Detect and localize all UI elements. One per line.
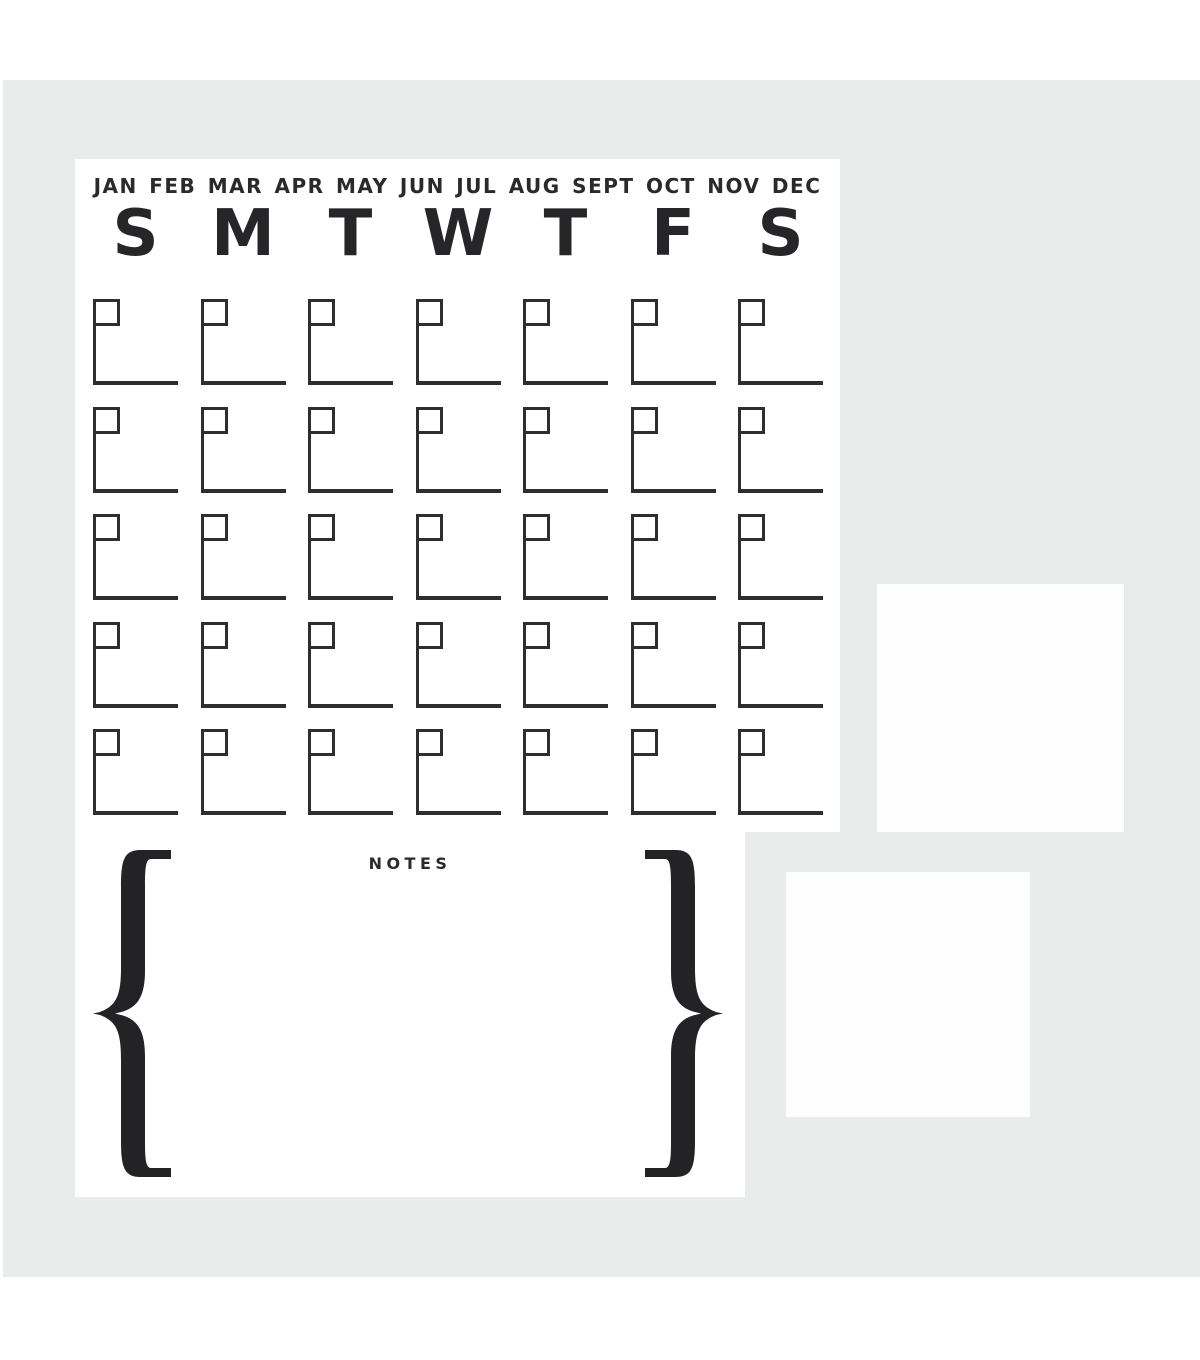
weekday-row: S M T W T F S <box>93 202 823 266</box>
day-cell <box>308 407 393 493</box>
date-box <box>308 729 335 756</box>
months-strip: JAN FEB MAR APR MAY JUN JUL AUG SEPT OCT… <box>75 172 840 200</box>
weekday-letter-saturday: S <box>738 202 823 266</box>
right-brace-icon <box>645 850 723 1177</box>
date-box <box>631 622 658 649</box>
day-cell <box>631 729 716 815</box>
day-cell <box>201 514 286 600</box>
date-box <box>201 729 228 756</box>
weekday-letter-monday: M <box>201 202 286 266</box>
date-box <box>631 729 658 756</box>
date-box <box>308 622 335 649</box>
day-cell <box>93 622 178 708</box>
date-box <box>523 514 550 541</box>
date-box <box>93 299 120 326</box>
weekday-letter-sunday: S <box>93 202 178 266</box>
date-box <box>93 407 120 434</box>
day-cell <box>631 622 716 708</box>
day-cell <box>201 622 286 708</box>
day-cell <box>416 407 501 493</box>
day-cell <box>523 514 608 600</box>
day-cell <box>201 729 286 815</box>
day-cell <box>93 407 178 493</box>
day-cell <box>523 729 608 815</box>
calendar-card: JAN FEB MAR APR MAY JUN JUL AUG SEPT OCT… <box>75 159 840 832</box>
day-cell <box>201 407 286 493</box>
weekday-letter-thursday: T <box>523 202 608 266</box>
day-cell <box>308 514 393 600</box>
date-box <box>631 299 658 326</box>
date-box <box>308 299 335 326</box>
date-box <box>523 407 550 434</box>
blank-card-2 <box>786 872 1030 1117</box>
date-box <box>93 622 120 649</box>
date-box <box>93 729 120 756</box>
date-box <box>416 514 443 541</box>
date-box <box>631 514 658 541</box>
day-cell <box>201 299 286 385</box>
date-box <box>416 622 443 649</box>
day-cell <box>416 514 501 600</box>
day-cell <box>93 514 178 600</box>
date-box <box>201 299 228 326</box>
page: { "page": { "background_color": "#ffffff… <box>0 0 1200 1360</box>
date-box <box>308 407 335 434</box>
date-box <box>738 729 765 756</box>
day-cell <box>308 299 393 385</box>
date-box <box>416 729 443 756</box>
day-cell <box>308 729 393 815</box>
date-box <box>738 622 765 649</box>
notes-card: NOTES <box>75 832 745 1197</box>
day-cell <box>738 407 823 493</box>
day-cell <box>308 622 393 708</box>
calendar-grid <box>93 299 823 815</box>
day-cell <box>738 299 823 385</box>
weekday-letter-friday: F <box>631 202 716 266</box>
day-cell <box>523 299 608 385</box>
day-cell <box>523 407 608 493</box>
date-box <box>201 514 228 541</box>
date-box <box>308 514 335 541</box>
weekday-letter-tuesday: T <box>308 202 393 266</box>
date-box <box>416 299 443 326</box>
weekday-letter-wednesday: W <box>416 202 501 266</box>
day-cell <box>738 622 823 708</box>
day-cell <box>631 299 716 385</box>
date-box <box>738 299 765 326</box>
date-box <box>523 729 550 756</box>
date-box <box>738 514 765 541</box>
date-box <box>93 514 120 541</box>
day-cell <box>738 514 823 600</box>
date-box <box>631 407 658 434</box>
day-cell <box>631 514 716 600</box>
date-box <box>416 407 443 434</box>
date-box <box>738 407 765 434</box>
day-cell <box>416 622 501 708</box>
left-brace-icon <box>93 850 171 1177</box>
date-box <box>523 622 550 649</box>
day-cell <box>631 407 716 493</box>
date-box <box>523 299 550 326</box>
day-cell <box>523 622 608 708</box>
day-cell <box>416 299 501 385</box>
day-cell <box>93 729 178 815</box>
date-box <box>201 407 228 434</box>
day-cell <box>93 299 178 385</box>
day-cell <box>738 729 823 815</box>
date-box <box>201 622 228 649</box>
day-cell <box>416 729 501 815</box>
blank-card-1 <box>877 584 1124 832</box>
